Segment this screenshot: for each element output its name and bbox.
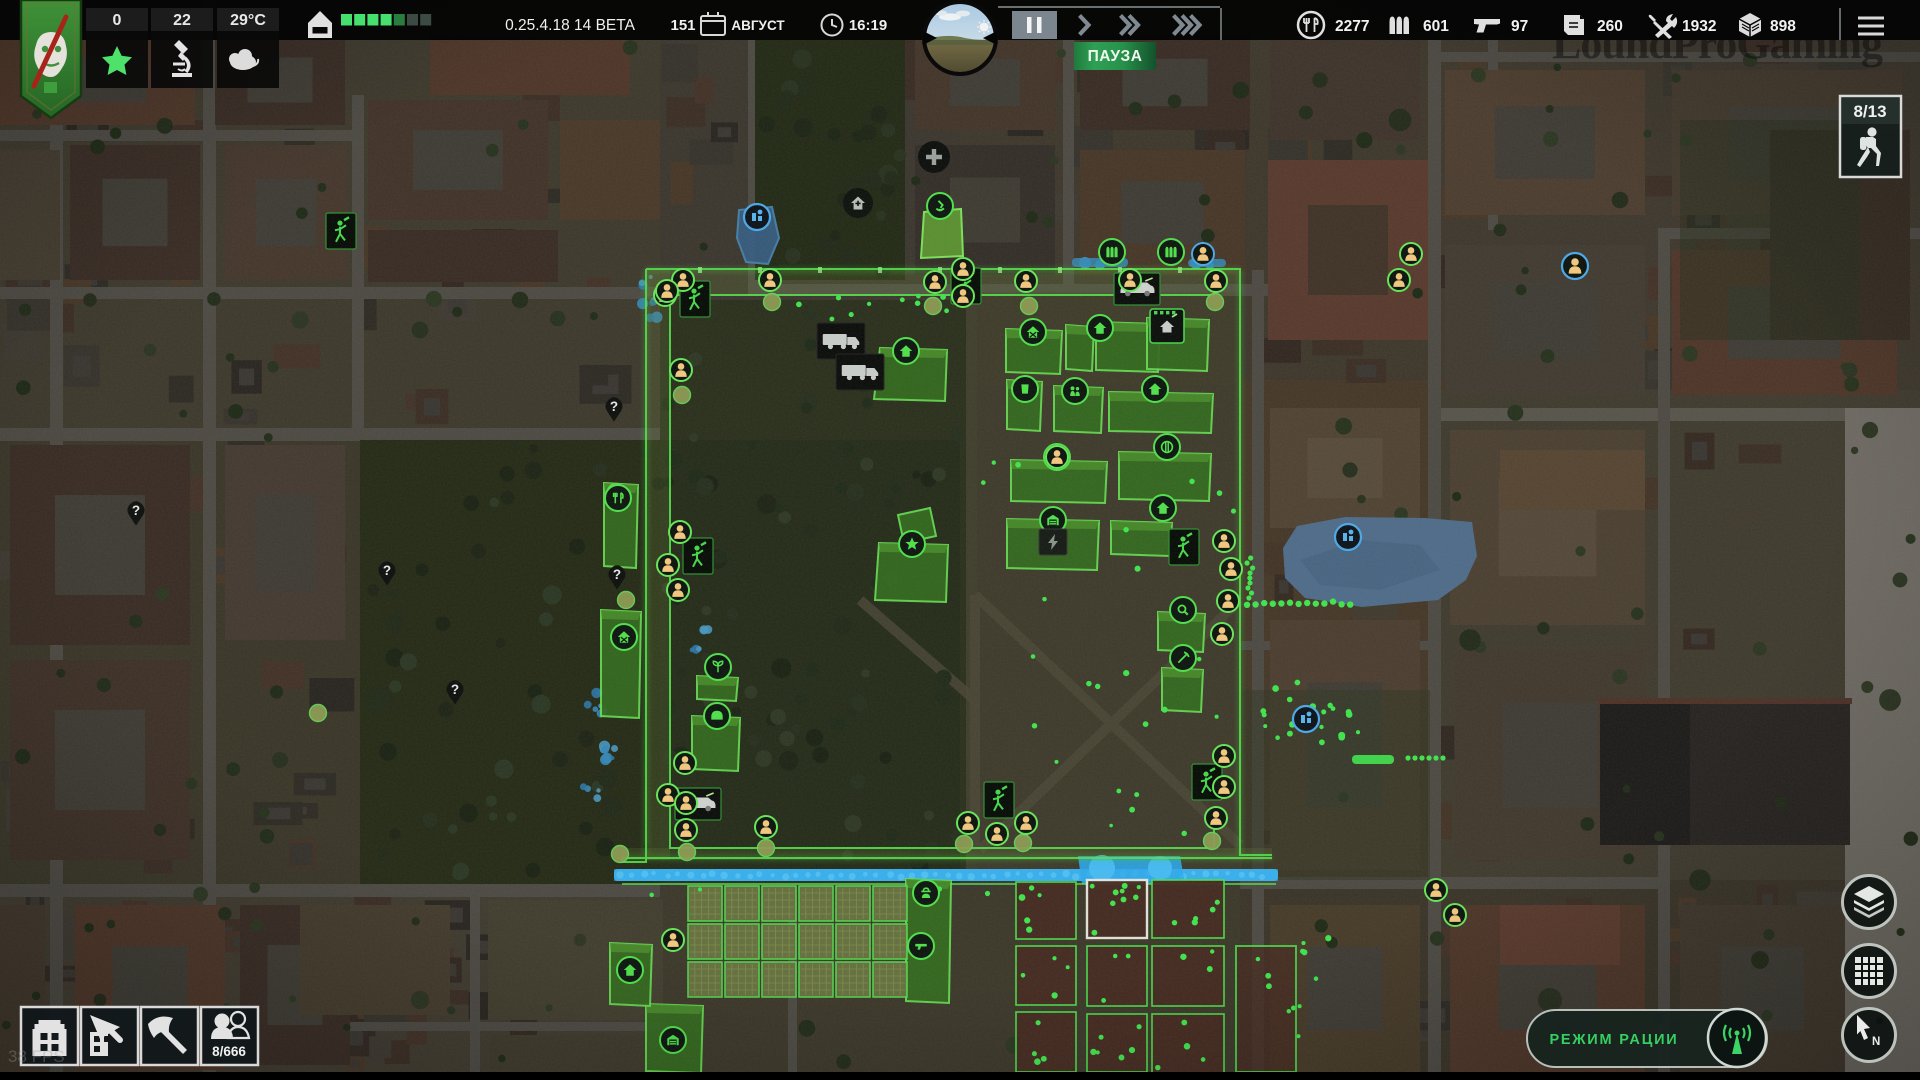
svg-text:29°C: 29°C [230, 12, 266, 29]
svg-text:260: 260 [1597, 18, 1623, 35]
svg-text:0.25.4.18 14 BETA: 0.25.4.18 14 BETA [505, 17, 635, 34]
svg-text:898: 898 [1770, 18, 1796, 35]
svg-text:97: 97 [1511, 18, 1528, 35]
svg-text:2277: 2277 [1335, 18, 1369, 35]
svg-text:38 FPS: 38 FPS [8, 1047, 65, 1066]
svg-text:601: 601 [1423, 18, 1449, 35]
svg-text:N: N [1872, 1036, 1880, 1048]
svg-text:22: 22 [173, 12, 191, 29]
svg-text:0: 0 [113, 12, 122, 29]
svg-text:АВГУСТ: АВГУСТ [731, 18, 785, 33]
svg-text:ПАУЗА: ПАУЗА [1088, 48, 1143, 65]
svg-text:8/13: 8/13 [1853, 102, 1886, 121]
svg-text:1932: 1932 [1682, 18, 1716, 35]
svg-text:151: 151 [670, 17, 695, 34]
svg-text:16:19: 16:19 [849, 17, 887, 34]
svg-text:8/666: 8/666 [212, 1044, 246, 1059]
svg-text:РЕЖИМ РАЦИИ: РЕЖИМ РАЦИИ [1549, 1032, 1678, 1048]
